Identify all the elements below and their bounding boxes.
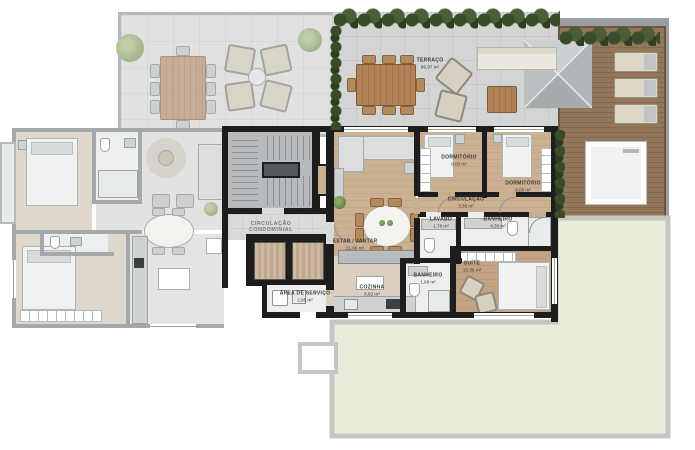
wall (262, 280, 334, 285)
kitchen-counter (132, 236, 148, 324)
double-bed (498, 262, 550, 310)
stairs (262, 176, 314, 206)
sun-lounger (614, 78, 658, 98)
wall (456, 212, 461, 264)
wardrobe (20, 310, 102, 322)
door-opening (414, 198, 420, 214)
planter-box (298, 342, 338, 374)
chair (362, 106, 376, 115)
wall (40, 252, 114, 256)
wall (222, 126, 228, 214)
chair (400, 55, 414, 64)
fridge (206, 238, 222, 254)
wall (138, 128, 142, 204)
dining-table (144, 214, 194, 248)
nightstand (455, 134, 465, 144)
room-area: 8,82 m² (364, 291, 380, 296)
balcony (0, 142, 16, 224)
chair (176, 46, 190, 56)
elevator-car (254, 242, 286, 280)
sofa-back (478, 48, 556, 54)
cooktop (134, 258, 144, 268)
chair (347, 78, 356, 92)
floor-plan: TERRAÇO 86,87 m² DORMITÓRIO 8,00 m² DORM… (0, 0, 695, 450)
stairs (262, 136, 314, 160)
pool (586, 142, 646, 204)
room-area: 8,00 m² (451, 161, 467, 166)
sink (344, 299, 358, 310)
room-label-dormitorio-2: DORMITÓRIO 8,06 m² (505, 181, 541, 192)
room-name: CONDOMINIAL (249, 228, 293, 234)
room-area: 8,06 m² (515, 187, 531, 192)
door-opening (262, 208, 284, 214)
hedge (334, 8, 560, 30)
wall (450, 246, 456, 318)
wall (326, 126, 334, 222)
toilet (424, 238, 435, 253)
room-area: 86,87 m² (421, 64, 439, 69)
coffee-table (487, 86, 517, 113)
sun-lounger (614, 104, 658, 124)
chair (355, 213, 364, 227)
chair (370, 198, 384, 207)
room-area: 1,98 m² (420, 279, 436, 284)
wall (482, 126, 487, 198)
outdoor-sofa (477, 47, 557, 70)
chair (172, 247, 185, 255)
toilet (50, 236, 60, 249)
chair (382, 55, 396, 64)
plant (298, 28, 322, 52)
bed (502, 134, 532, 178)
wall (456, 246, 551, 251)
chair (416, 78, 425, 92)
shower (428, 290, 450, 312)
chair (150, 82, 160, 96)
wall (12, 230, 142, 234)
nightstand (493, 134, 502, 143)
room-area: 21,66 m² (346, 245, 364, 250)
window (474, 313, 534, 318)
room-label-circulacao: CIRCULAÇÃO 3,35 m² (448, 197, 485, 208)
sofa-chaise (338, 136, 364, 172)
boundary-wall-top (556, 18, 668, 26)
window (11, 260, 16, 298)
elevator-car (292, 242, 324, 280)
chair (150, 64, 160, 78)
stairs (232, 136, 258, 206)
room-area: 2,95 m² (297, 297, 313, 302)
wall (92, 200, 142, 204)
wall (92, 128, 96, 204)
toilet (409, 283, 420, 297)
room-area: 3,35 m² (458, 203, 474, 208)
hedge (330, 26, 342, 130)
chair (152, 208, 165, 216)
room-label-circulacao-condominial: CIRCULAÇÃO CONDOMINIAL (249, 222, 293, 234)
window (348, 313, 392, 318)
round-table (248, 68, 266, 86)
armchair (152, 194, 170, 208)
room-label-dormitorio-1: DORMITÓRIO 8,00 m² (441, 155, 477, 166)
nightstand (18, 140, 27, 150)
room-area: 15,36 m² (463, 267, 481, 272)
window (494, 127, 544, 132)
window (552, 258, 557, 304)
chair (388, 198, 402, 207)
pouf (158, 150, 174, 166)
room-area: 1,78 m² (433, 223, 449, 228)
chair (382, 106, 396, 115)
hedge (554, 130, 565, 218)
centerpiece (379, 220, 385, 226)
sofa (198, 144, 224, 200)
kitchen-island (158, 268, 190, 290)
lounge-chair (224, 80, 256, 112)
wall (40, 230, 44, 256)
room-label-suite: SUÍTE 15,36 m² (463, 261, 481, 272)
shower (98, 170, 138, 198)
stair-landing (262, 162, 300, 178)
bed (26, 138, 78, 206)
wall (414, 126, 420, 196)
wall (262, 280, 267, 318)
sink (124, 138, 136, 148)
chair (172, 208, 185, 216)
wardrobe (420, 148, 431, 192)
room-label-area-servico: ÁREA DE SERVIÇO 2,95 m² (280, 291, 331, 302)
pool-step (623, 149, 639, 153)
wall (222, 126, 326, 132)
faded-hall-floor (96, 204, 142, 230)
window (150, 324, 196, 329)
wall (400, 258, 406, 318)
wall (126, 234, 130, 328)
plant (204, 202, 218, 216)
sink (70, 237, 82, 246)
sun-lounger (614, 52, 658, 72)
room-label-estar-jantar: ESTAR / JANTAR 21,66 m² (333, 239, 378, 250)
wall (222, 208, 228, 288)
window (428, 127, 476, 132)
window (344, 127, 408, 132)
room-label-lavabo: LAVABO 1,78 m² (430, 217, 452, 228)
door-opening (468, 212, 484, 217)
chair (362, 55, 376, 64)
room-label-banheiro-2: BANHEIRO 1,98 m² (413, 273, 442, 284)
plant (333, 196, 346, 209)
chair (152, 247, 165, 255)
wall (12, 128, 224, 132)
chair (206, 82, 216, 96)
room-label-cozinha: COZINHA 8,82 m² (360, 285, 385, 296)
chair (150, 100, 160, 114)
room-label-banheiro-1: BANHEIRO 4,30 m² (483, 217, 512, 228)
door-opening (300, 312, 316, 318)
room-label-terraco: TERRAÇO 86,87 m² (417, 58, 444, 69)
room-area: 4,30 m² (490, 223, 506, 228)
centerpiece (387, 220, 393, 226)
outdoor-dining-table (160, 56, 206, 120)
armchair (176, 194, 194, 208)
plant (116, 34, 144, 62)
chair (206, 100, 216, 114)
chair (206, 64, 216, 78)
chair (400, 106, 414, 115)
hedge (560, 26, 660, 46)
toilet (100, 138, 110, 152)
terrace-dining-table (356, 64, 416, 106)
